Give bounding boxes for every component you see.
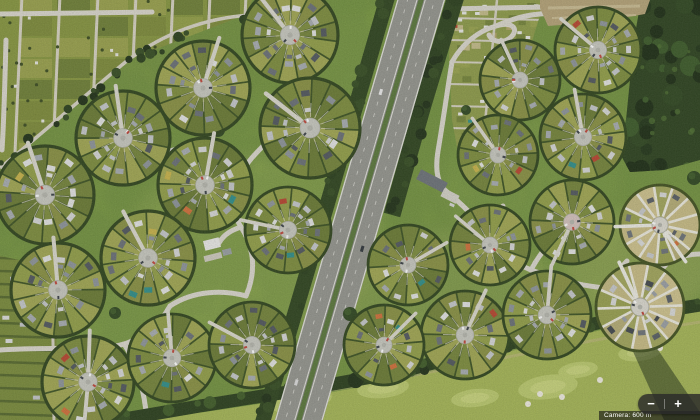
aerial-imagery [0,0,700,420]
zoom-in-button[interactable]: + [665,394,691,414]
zoom-out-button[interactable]: − [638,394,664,414]
zoom-control: − + [638,394,700,414]
map-viewport[interactable]: Camera: 600 m − + [0,0,700,420]
photo-grain-light [0,0,700,420]
